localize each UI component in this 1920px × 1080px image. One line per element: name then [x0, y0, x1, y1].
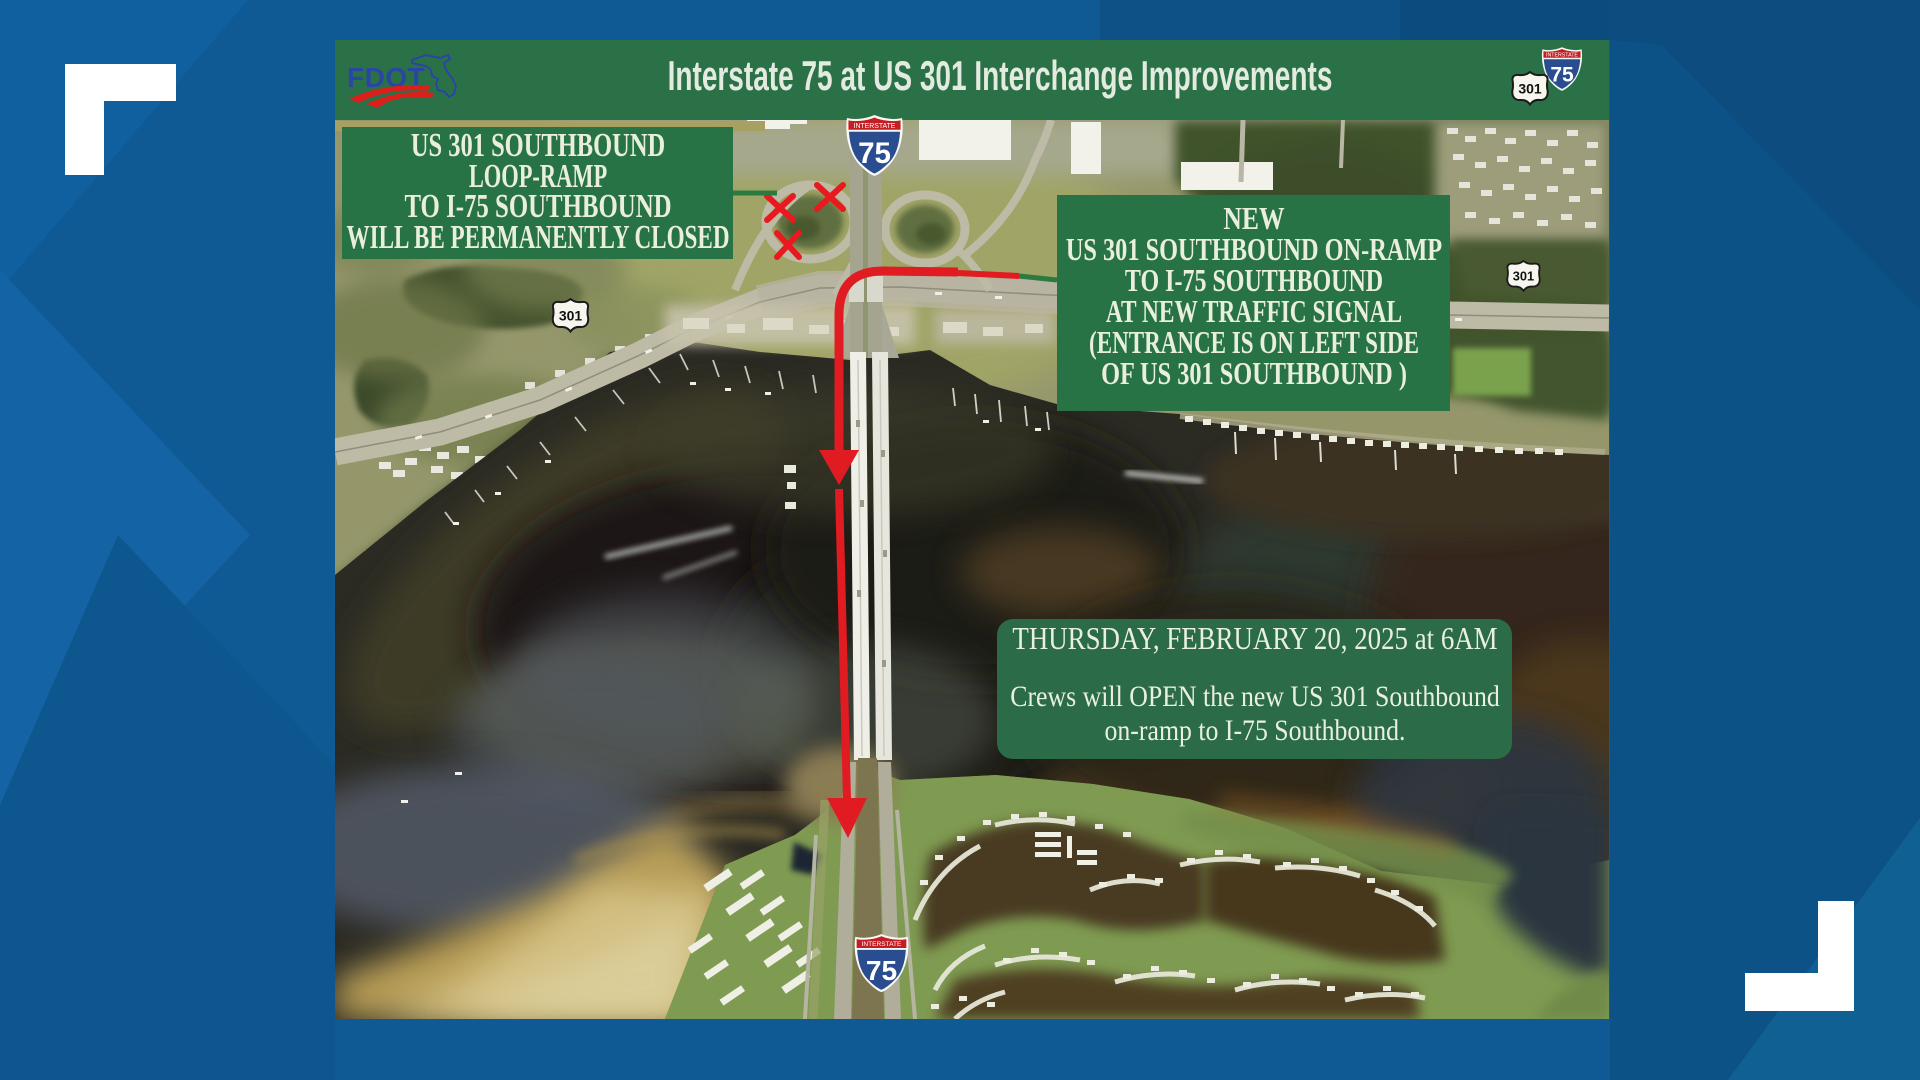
- svg-text:75: 75: [1550, 64, 1574, 87]
- svg-text:301: 301: [1518, 81, 1542, 97]
- svg-text:INTERSTATE: INTERSTATE: [854, 123, 896, 130]
- svg-text:INTERSTATE: INTERSTATE: [862, 941, 902, 948]
- svg-text:75: 75: [858, 137, 891, 170]
- svg-text:INTERSTATE: INTERSTATE: [1546, 52, 1578, 58]
- svg-text:301: 301: [559, 308, 583, 324]
- svg-text:301: 301: [1513, 269, 1534, 284]
- svg-text:75: 75: [866, 955, 897, 986]
